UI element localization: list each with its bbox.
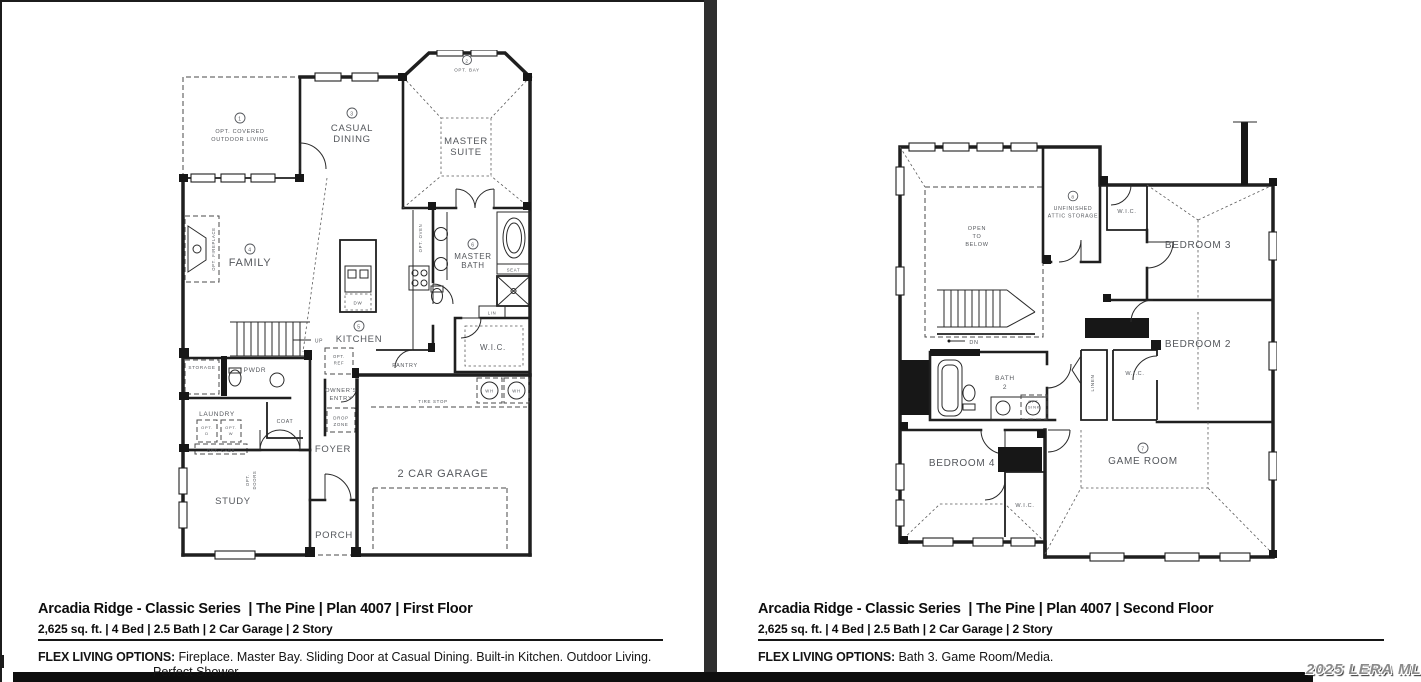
room-label-wic-hall: W.I.C. xyxy=(1117,209,1136,215)
label-opt-washer-2: W xyxy=(229,431,233,436)
room-label-game-room: GAME ROOM xyxy=(1108,456,1178,467)
left-border xyxy=(0,0,2,682)
label-opt-cabs: OPT. CABS xyxy=(207,448,235,453)
label-dishwasher: DW xyxy=(354,301,363,306)
room-label-outdoor-living-1: OPT. COVERED xyxy=(215,129,264,135)
label-coat: COAT xyxy=(277,419,294,425)
room-label-master-bath-1: MASTER xyxy=(454,252,492,261)
room-label-wic-bed2: W.I.C. xyxy=(1125,371,1144,377)
callout-game-room: 7 xyxy=(1141,447,1144,453)
callout-casual-dining: 3 xyxy=(350,112,353,118)
label-opt-washer-1: OPT. xyxy=(225,425,237,430)
room-label-wic-bed4: W.I.C. xyxy=(1015,503,1034,509)
room-label-powder: PWDR xyxy=(244,367,267,374)
first-floor-flex-options: FLEX LIVING OPTIONS: Fireplace. Master B… xyxy=(38,650,686,680)
panel-divider xyxy=(704,0,717,682)
label-opt-fireplace: OPT. FIREPLACE xyxy=(211,227,216,271)
first-floor-rule xyxy=(38,639,663,641)
label-open-to-below-1: OPEN xyxy=(968,226,986,232)
callout-attic-storage: 8 xyxy=(1071,195,1074,201)
room-label-porch: PORCH xyxy=(315,530,353,541)
label-opt-oven: OPT. OVEN xyxy=(418,224,423,253)
callout-master-bath: 6 xyxy=(471,243,474,249)
room-label-kitchen: KITCHEN xyxy=(336,334,383,345)
callout-opt-bay: 2 xyxy=(465,58,468,64)
label-opt-dryer-2: D xyxy=(205,431,209,436)
label-storage: STORAGE xyxy=(188,365,215,370)
flex-options-text-line1: Fireplace. Master Bay. Sliding Door at C… xyxy=(178,650,651,664)
label-opt-sink-1: OPT. xyxy=(1028,399,1040,404)
room-label-master-bath-2: BATH xyxy=(461,261,485,270)
room-label-wic: W.I.C. xyxy=(480,343,506,352)
label-water-heater-2: WH xyxy=(512,389,520,394)
first-floor-title: Arcadia Ridge - Classic Series | The Pin… xyxy=(38,601,473,617)
room-label-foyer: FOYER xyxy=(315,444,351,455)
label-tire-stop: TIRE STOP xyxy=(418,399,447,404)
flex-options-text-line2: Perfect Shower. xyxy=(153,665,686,680)
label-drop-zone-1: DROP xyxy=(333,416,349,421)
flex-options-label: FLEX LIVING OPTIONS: xyxy=(38,650,175,664)
room-label-family: FAMILY xyxy=(229,257,272,269)
label-stairs-up: UP xyxy=(315,339,323,345)
room-label-master-suite-1: MASTER xyxy=(444,136,488,147)
room-label-outdoor-living-2: OUTDOOR LIVING xyxy=(211,137,268,143)
label-opt-dryer-1: OPT. xyxy=(201,425,213,430)
room-label-bedroom3: BEDROOM 3 xyxy=(1165,240,1231,251)
room-label-casual-dining-1: CASUAL xyxy=(331,123,373,134)
room-label-laundry: LAUNDRY xyxy=(199,411,235,418)
label-stairs-down: DN xyxy=(969,340,978,346)
room-label-attic-2: ATTIC STORAGE xyxy=(1048,214,1098,220)
second-floor-rule xyxy=(758,639,1384,641)
label-open-to-below-2: TO xyxy=(973,234,982,240)
label-linen-closet: LIN xyxy=(488,310,497,315)
left-edge-mark xyxy=(0,655,4,668)
room-label-casual-dining-2: DINING xyxy=(333,134,370,145)
label-opt-sink-2: SINK xyxy=(1028,405,1040,410)
second-floor-specs: 2,625 sq. ft. | 4 Bed | 2.5 Bath | 2 Car… xyxy=(758,622,1053,636)
label-opt-ref-1: OPT. xyxy=(333,354,345,359)
room-label-opt-bay: OPT. BAY xyxy=(454,68,480,73)
mls-watermark: 2025 LERA MLS xyxy=(1306,661,1421,678)
first-floor-specs: 2,625 sq. ft. | 4 Bed | 2.5 Bath | 2 Car… xyxy=(38,622,333,636)
second-floor-plan: OPEN TO BELOW 8 UNFINISHED ATTIC STORAGE… xyxy=(885,112,1277,564)
room-label-garage: 2 CAR GARAGE xyxy=(398,468,489,480)
callout-outdoor-living: 1 xyxy=(238,117,241,123)
flex-options-text-line1: Bath 3. Game Room/Media. xyxy=(898,650,1053,664)
second-floor-title: Arcadia Ridge - Classic Series | The Pin… xyxy=(758,601,1213,617)
label-opt-doors-1: OPT. xyxy=(245,474,250,486)
first-floor-plan: 2 OPT. BAY 1 OPT. COVERED OUTDOOR LIVING… xyxy=(175,50,543,565)
room-label-master-suite-2: SUITE xyxy=(450,147,481,158)
label-owners-entry-2: ENTRY xyxy=(329,396,352,402)
label-owners-entry-1: OWNER'S xyxy=(325,388,357,394)
label-opt-doors-2: DOORS xyxy=(252,471,257,490)
room-label-bath2-1: BATH xyxy=(995,375,1015,382)
label-seat: SEAT xyxy=(507,268,520,273)
room-label-bedroom4: BEDROOM 4 xyxy=(929,458,995,469)
callout-family: 4 xyxy=(248,248,251,254)
callout-kitchen: 5 xyxy=(357,325,360,331)
label-linen: LINEN xyxy=(1090,374,1095,391)
label-pantry: PANTRY xyxy=(392,363,418,369)
room-label-attic-1: UNFINISHED xyxy=(1054,206,1093,212)
flex-options-label: FLEX LIVING OPTIONS: xyxy=(758,650,895,664)
room-label-bath2-2: 2 xyxy=(1003,384,1007,391)
label-water-heater-1: WH xyxy=(485,389,493,394)
room-label-bedroom2: BEDROOM 2 xyxy=(1165,339,1231,350)
top-border xyxy=(0,0,717,2)
floorplan-sheet: { "watermark": "2025 LERA MLS", "panels"… xyxy=(0,0,1421,682)
label-opt-ref-2: REF xyxy=(334,361,344,366)
label-open-to-below-3: BELOW xyxy=(965,242,988,248)
label-drop-zone-2: ZONE xyxy=(334,422,349,427)
room-label-study: STUDY xyxy=(215,496,251,507)
